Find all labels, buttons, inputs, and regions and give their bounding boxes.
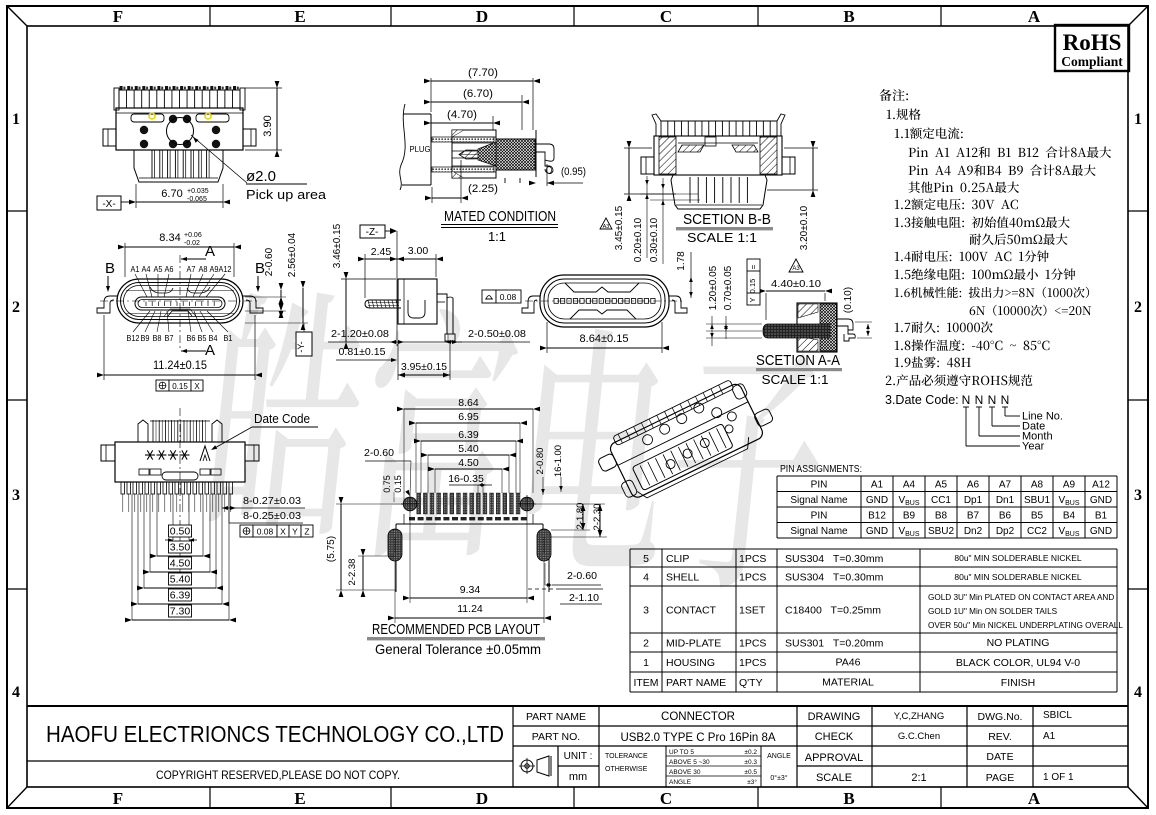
svg-text:0.08: 0.08 xyxy=(500,292,517,302)
svg-text:B9: B9 xyxy=(141,334,150,343)
svg-text:A: A xyxy=(1028,7,1041,26)
svg-text:PLUG: PLUG xyxy=(410,144,431,154)
svg-text:GND: GND xyxy=(866,495,888,506)
svg-text:(6.70): (6.70) xyxy=(463,88,493,100)
svg-text:ø2.0: ø2.0 xyxy=(246,168,276,185)
svg-text:1: 1 xyxy=(12,111,20,128)
svg-text:3.45±0.15: 3.45±0.15 xyxy=(614,205,625,250)
svg-text:HOUSING: HOUSING xyxy=(666,657,715,669)
svg-text:Z: Z xyxy=(304,527,309,537)
svg-text:-Y-: -Y- xyxy=(296,341,306,352)
svg-text:Dn2: Dn2 xyxy=(964,526,983,537)
svg-text:A7: A7 xyxy=(999,480,1012,491)
svg-text:G.C.Chen: G.C.Chen xyxy=(898,731,940,742)
svg-text:MATERIAL: MATERIAL xyxy=(822,677,874,689)
svg-text:+0.06: +0.06 xyxy=(184,232,202,239)
svg-text:1SET: 1SET xyxy=(739,604,766,616)
svg-text:CONTACT: CONTACT xyxy=(666,604,717,616)
svg-text:B: B xyxy=(843,7,854,26)
svg-text:SUS301 T=0.20mm: SUS301 T=0.20mm xyxy=(785,637,884,649)
svg-text:0.75: 0.75 xyxy=(382,475,392,493)
svg-text:11.24: 11.24 xyxy=(457,603,483,615)
svg-text:DATE: DATE xyxy=(986,751,1013,763)
svg-text:A8: A8 xyxy=(199,265,208,274)
svg-text:1: 1 xyxy=(643,657,649,669)
svg-text:A: A xyxy=(205,342,215,359)
svg-text:3.90: 3.90 xyxy=(262,115,274,136)
svg-text:±0.2: ±0.2 xyxy=(744,749,757,756)
svg-text:PAGE: PAGE xyxy=(986,772,1014,784)
svg-text:Signal Name: Signal Name xyxy=(790,526,848,537)
svg-text:11.24±0.15: 11.24±0.15 xyxy=(153,358,207,372)
svg-text:MATED CONDITION: MATED CONDITION xyxy=(444,209,556,225)
svg-text:A1: A1 xyxy=(131,265,140,274)
svg-text:0°±3°: 0°±3° xyxy=(770,774,787,782)
svg-text:B8: B8 xyxy=(935,511,948,522)
svg-text:3.20±0.10: 3.20±0.10 xyxy=(799,205,810,250)
svg-text:X: X xyxy=(280,527,286,537)
svg-text:A1: A1 xyxy=(1043,731,1056,742)
svg-text:N: N xyxy=(988,393,997,407)
svg-text:GOLD 3U" Min PLATED ON CONTACT: GOLD 3U" Min PLATED ON CONTACT AREA AND xyxy=(928,593,1114,602)
svg-text:8.64±0.15: 8.64±0.15 xyxy=(580,333,629,345)
svg-text:2-0.50±0.08: 2-0.50±0.08 xyxy=(468,328,526,340)
svg-text:2.45: 2.45 xyxy=(371,246,392,258)
svg-text:5.40: 5.40 xyxy=(458,443,479,455)
svg-text:Y,C,ZHANG: Y,C,ZHANG xyxy=(894,711,945,722)
svg-text:Compliant: Compliant xyxy=(1061,54,1123,69)
svg-text:OVER 50u" Min NICKEL UNDERPLAT: OVER 50u" Min NICKEL UNDERPLATING OVERAL… xyxy=(928,621,1123,630)
svg-text:B: B xyxy=(105,260,115,277)
svg-text:A1: A1 xyxy=(871,480,884,491)
svg-text:2-2.30: 2-2.30 xyxy=(592,504,603,531)
svg-text:2-2.38: 2-2.38 xyxy=(347,559,358,586)
svg-text:ABOVE 5 ~30: ABOVE 5 ~30 xyxy=(669,759,710,766)
svg-text:Q'TY: Q'TY xyxy=(739,677,763,689)
svg-text:Dn1: Dn1 xyxy=(996,495,1015,506)
svg-text:PIN ASSIGNMENTS:: PIN ASSIGNMENTS: xyxy=(780,463,862,475)
svg-text:E: E xyxy=(294,789,305,808)
svg-text:A: A xyxy=(1028,789,1041,808)
svg-text:A12: A12 xyxy=(1092,480,1110,491)
svg-text:B1: B1 xyxy=(224,334,233,343)
svg-text:=: = xyxy=(749,264,758,269)
svg-text:PIN: PIN xyxy=(811,480,828,491)
svg-text:SBU1: SBU1 xyxy=(1024,495,1051,506)
svg-text:B4: B4 xyxy=(1063,511,1076,522)
svg-text:C18400 T=0.25mm: C18400 T=0.25mm xyxy=(785,604,881,616)
svg-text:0.70±0.05: 0.70±0.05 xyxy=(723,265,734,310)
svg-text:1: 1 xyxy=(1134,111,1142,128)
svg-text:2-0.60: 2-0.60 xyxy=(364,447,394,459)
svg-text:5.40: 5.40 xyxy=(170,574,191,586)
svg-text:mm: mm xyxy=(569,771,587,783)
svg-text:APPROVAL: APPROVAL xyxy=(805,752,864,764)
svg-text:MID-PLATE: MID-PLATE xyxy=(666,637,721,649)
svg-text:A8: A8 xyxy=(1031,480,1044,491)
svg-text:A5: A5 xyxy=(154,265,163,274)
svg-text:(0.95): (0.95) xyxy=(561,166,586,178)
svg-text:3: 3 xyxy=(643,604,649,616)
svg-text:5: 5 xyxy=(643,553,649,565)
svg-text:HAOFU ELECTRIONCS TECHNOLOGY C: HAOFU ELECTRIONCS TECHNOLOGY CO.,LTD xyxy=(46,721,504,747)
svg-text:B5: B5 xyxy=(198,334,207,343)
svg-text:RECOMMENDED PCB LAYOUT: RECOMMENDED PCB LAYOUT xyxy=(372,622,540,638)
svg-text:SCALE 1:1: SCALE 1:1 xyxy=(762,372,829,387)
svg-text:8.34: 8.34 xyxy=(159,232,180,244)
svg-text:COPYRIGHT RESERVED,PLEASE DO N: COPYRIGHT RESERVED,PLEASE DO NOT COPY. xyxy=(156,770,400,782)
svg-text:6.39: 6.39 xyxy=(458,429,479,441)
svg-text:16-0.35: 16-0.35 xyxy=(448,473,484,485)
svg-text:CONNECTOR: CONNECTOR xyxy=(661,711,735,723)
svg-text:Year: Year xyxy=(1022,441,1045,453)
svg-text:D: D xyxy=(476,7,488,26)
svg-text:B6: B6 xyxy=(999,511,1012,522)
svg-text:±0.5: ±0.5 xyxy=(744,769,757,776)
svg-text:A3: A3 xyxy=(603,224,610,230)
svg-text:E: E xyxy=(294,7,305,26)
svg-text:B12: B12 xyxy=(127,334,141,343)
svg-text:-0.02: -0.02 xyxy=(184,240,200,247)
svg-text:Dp1: Dp1 xyxy=(964,495,983,506)
svg-text:2: 2 xyxy=(1134,299,1142,316)
svg-text:FINISH: FINISH xyxy=(1001,677,1035,689)
svg-text:A5: A5 xyxy=(935,480,948,491)
svg-text:(4.70): (4.70) xyxy=(447,109,477,121)
svg-text:8-0.27±0.03: 8-0.27±0.03 xyxy=(243,496,301,507)
svg-text:UNIT :: UNIT : xyxy=(564,751,593,762)
svg-text:3: 3 xyxy=(12,487,20,504)
svg-text:N: N xyxy=(975,393,984,407)
svg-text:0.15: 0.15 xyxy=(748,279,757,294)
svg-text:80u" MIN SOLDERABLE NICKEL: 80u" MIN SOLDERABLE NICKEL xyxy=(954,553,1082,563)
svg-text:-0.065: -0.065 xyxy=(187,196,207,203)
svg-text:2:1: 2:1 xyxy=(911,772,926,784)
svg-text:N: N xyxy=(962,393,971,407)
svg-text:B8: B8 xyxy=(153,334,162,343)
svg-text:C: C xyxy=(660,789,672,808)
svg-text:OTHERWISE: OTHERWISE xyxy=(605,766,648,773)
svg-text:SUS304 T=0.30mm: SUS304 T=0.30mm xyxy=(785,553,884,565)
svg-text:8.64: 8.64 xyxy=(458,397,479,409)
svg-text:ITEM: ITEM xyxy=(633,677,658,689)
svg-text:2-0.60: 2-0.60 xyxy=(264,247,275,276)
svg-text:-Z-: -Z- xyxy=(366,227,379,238)
svg-text:(0.10): (0.10) xyxy=(843,287,854,313)
svg-text:1PCS: 1PCS xyxy=(739,637,766,649)
svg-text:±0.3: ±0.3 xyxy=(744,759,757,766)
svg-text:2-1.10: 2-1.10 xyxy=(569,592,599,604)
svg-text:1.20±0.05: 1.20±0.05 xyxy=(708,265,719,310)
svg-text:6.39: 6.39 xyxy=(170,590,191,602)
svg-text:4.50: 4.50 xyxy=(170,558,191,570)
svg-text:Signal Name: Signal Name xyxy=(790,495,848,506)
svg-text:B4: B4 xyxy=(209,334,218,343)
svg-text:A4: A4 xyxy=(142,265,151,274)
svg-text:ANGLE: ANGLE xyxy=(669,779,692,786)
svg-text:6.70: 6.70 xyxy=(161,188,182,200)
svg-text:7.30: 7.30 xyxy=(170,606,191,618)
svg-text:2-0.60: 2-0.60 xyxy=(567,570,597,582)
svg-text:0.30±0.10: 0.30±0.10 xyxy=(649,217,660,262)
svg-text:8-0.25±0.03: 8-0.25±0.03 xyxy=(243,511,301,522)
svg-text:Y: Y xyxy=(292,527,298,537)
svg-text:2.56±0.04: 2.56±0.04 xyxy=(287,232,298,277)
svg-text:GND: GND xyxy=(1090,495,1112,506)
svg-text:3.50: 3.50 xyxy=(170,542,191,554)
svg-text:0.15: 0.15 xyxy=(393,475,403,493)
svg-text:CHECK: CHECK xyxy=(815,731,854,743)
svg-text:CLIP: CLIP xyxy=(666,553,689,565)
svg-text:SCETION B-B: SCETION B-B xyxy=(683,212,771,228)
svg-text:2: 2 xyxy=(12,299,20,316)
svg-text:F: F xyxy=(113,7,123,26)
svg-text:A4: A4 xyxy=(903,480,916,491)
svg-text:Pick up area: Pick up area xyxy=(246,187,327,202)
svg-text:Dp2: Dp2 xyxy=(996,526,1015,537)
svg-text:SCALE 1:1: SCALE 1:1 xyxy=(687,230,757,245)
svg-text:B6: B6 xyxy=(187,334,196,343)
svg-text:PART NAME: PART NAME xyxy=(666,677,726,689)
svg-text:SUS304 T=0.30mm: SUS304 T=0.30mm xyxy=(785,571,884,583)
svg-text:GND: GND xyxy=(1090,526,1112,537)
svg-text:General Tolerance ±0.05mm: General Tolerance ±0.05mm xyxy=(375,641,541,657)
svg-text:PIN: PIN xyxy=(811,511,828,522)
svg-text:RoHS: RoHS xyxy=(1063,30,1122,55)
svg-text:GOLD 1U" Min ON SOLDER TAILS: GOLD 1U" Min ON SOLDER TAILS xyxy=(928,607,1058,616)
svg-text:4: 4 xyxy=(643,571,649,583)
svg-text:4: 4 xyxy=(12,684,20,701)
svg-text:A6: A6 xyxy=(967,480,980,491)
svg-text:A3: A3 xyxy=(792,266,800,272)
svg-text:SCALE: SCALE xyxy=(816,772,852,784)
svg-text:PART NO.: PART NO. xyxy=(532,731,580,743)
svg-text:DRAWING: DRAWING xyxy=(808,711,861,723)
svg-text:Date Code: Date Code xyxy=(254,411,310,426)
svg-text:(5.75): (5.75) xyxy=(326,536,337,562)
svg-text:(2.25): (2.25) xyxy=(468,183,498,195)
svg-text:C: C xyxy=(660,7,672,26)
svg-text:SBU2: SBU2 xyxy=(928,526,955,537)
svg-text:1.78: 1.78 xyxy=(676,251,687,271)
svg-text:3.95±0.15: 3.95±0.15 xyxy=(401,361,447,373)
svg-text:±3°: ±3° xyxy=(747,778,757,786)
svg-text:16-1.00: 16-1.00 xyxy=(553,445,564,477)
svg-text:A9: A9 xyxy=(1063,480,1076,491)
svg-text:3: 3 xyxy=(1134,487,1142,504)
svg-text:0.15: 0.15 xyxy=(172,382,188,391)
svg-text:B: B xyxy=(843,789,854,808)
svg-text:NO PLATING: NO PLATING xyxy=(987,637,1050,649)
svg-text:0.20±0.10: 0.20±0.10 xyxy=(633,217,644,262)
svg-text:REV.: REV. xyxy=(988,731,1012,743)
svg-text:3.Date Code:: 3.Date Code: xyxy=(885,393,959,407)
svg-text:CC1: CC1 xyxy=(931,495,951,506)
svg-text:SCETION A-A: SCETION A-A xyxy=(756,353,840,369)
svg-text:-X-: -X- xyxy=(102,199,115,210)
svg-text:2-1.20±0.08: 2-1.20±0.08 xyxy=(331,328,389,340)
svg-text:BLACK COLOR, UL94 V-0: BLACK COLOR, UL94 V-0 xyxy=(956,657,1080,669)
svg-text:3.00: 3.00 xyxy=(408,245,429,257)
svg-text:1PCS: 1PCS xyxy=(739,553,766,565)
svg-text:ABOVE 30: ABOVE 30 xyxy=(669,769,701,776)
svg-text:A7: A7 xyxy=(187,265,196,274)
svg-text:1PCS: 1PCS xyxy=(739,571,766,583)
svg-text:(7.70): (7.70) xyxy=(468,67,498,79)
svg-text:B7: B7 xyxy=(165,334,174,343)
svg-text:0.50: 0.50 xyxy=(170,526,191,538)
svg-text:9.34: 9.34 xyxy=(460,584,481,596)
svg-text:4: 4 xyxy=(1134,684,1142,701)
svg-text:+0.035: +0.035 xyxy=(187,188,209,195)
svg-text:2-0.80: 2-0.80 xyxy=(535,448,546,475)
svg-text:2: 2 xyxy=(643,637,649,649)
svg-text:80u" MIN SOLDERABLE NICKEL: 80u" MIN SOLDERABLE NICKEL xyxy=(954,572,1082,582)
svg-text:B7: B7 xyxy=(967,511,980,522)
svg-text:SBICL: SBICL xyxy=(1043,710,1072,721)
svg-text:A: A xyxy=(205,243,215,260)
svg-text:6.95: 6.95 xyxy=(458,411,479,423)
svg-text:X: X xyxy=(194,382,200,391)
svg-text:B9: B9 xyxy=(903,511,916,522)
svg-text:B12: B12 xyxy=(868,511,886,522)
svg-text:N: N xyxy=(1001,393,1010,407)
svg-text:D: D xyxy=(476,789,488,808)
svg-text:1 OF 1: 1 OF 1 xyxy=(1043,772,1074,783)
svg-text:USB2.0 TYPE C Pro 16Pin 8A: USB2.0 TYPE C Pro 16Pin 8A xyxy=(620,732,775,744)
svg-text:B1: B1 xyxy=(1095,511,1108,522)
svg-text:Y: Y xyxy=(748,297,757,302)
svg-text:4.40±0.10: 4.40±0.10 xyxy=(771,278,821,290)
svg-text:A12: A12 xyxy=(219,265,233,274)
svg-text:A6: A6 xyxy=(165,265,174,274)
svg-text:0.81±0.15: 0.81±0.15 xyxy=(339,346,386,358)
svg-text:CC2: CC2 xyxy=(1027,526,1047,537)
svg-text:PART NAME: PART NAME xyxy=(526,711,586,723)
svg-text:0.08: 0.08 xyxy=(257,527,274,537)
svg-text:DWG.No.: DWG.No. xyxy=(978,711,1023,723)
svg-text:4.50: 4.50 xyxy=(458,457,479,469)
svg-text:1PCS: 1PCS xyxy=(739,657,766,669)
svg-text:1:1: 1:1 xyxy=(488,229,506,244)
svg-text:PA46: PA46 xyxy=(836,657,861,669)
svg-text:3.46±0.15: 3.46±0.15 xyxy=(332,223,343,268)
svg-text:TOLERANCE: TOLERANCE xyxy=(605,753,648,760)
svg-text:ANGLE: ANGLE xyxy=(767,753,791,760)
svg-text:GND: GND xyxy=(866,526,888,537)
svg-text:SHELL: SHELL xyxy=(666,571,699,583)
svg-text:UP TO 5: UP TO 5 xyxy=(669,749,694,756)
svg-text:F: F xyxy=(113,789,123,808)
svg-text:B5: B5 xyxy=(1031,511,1044,522)
